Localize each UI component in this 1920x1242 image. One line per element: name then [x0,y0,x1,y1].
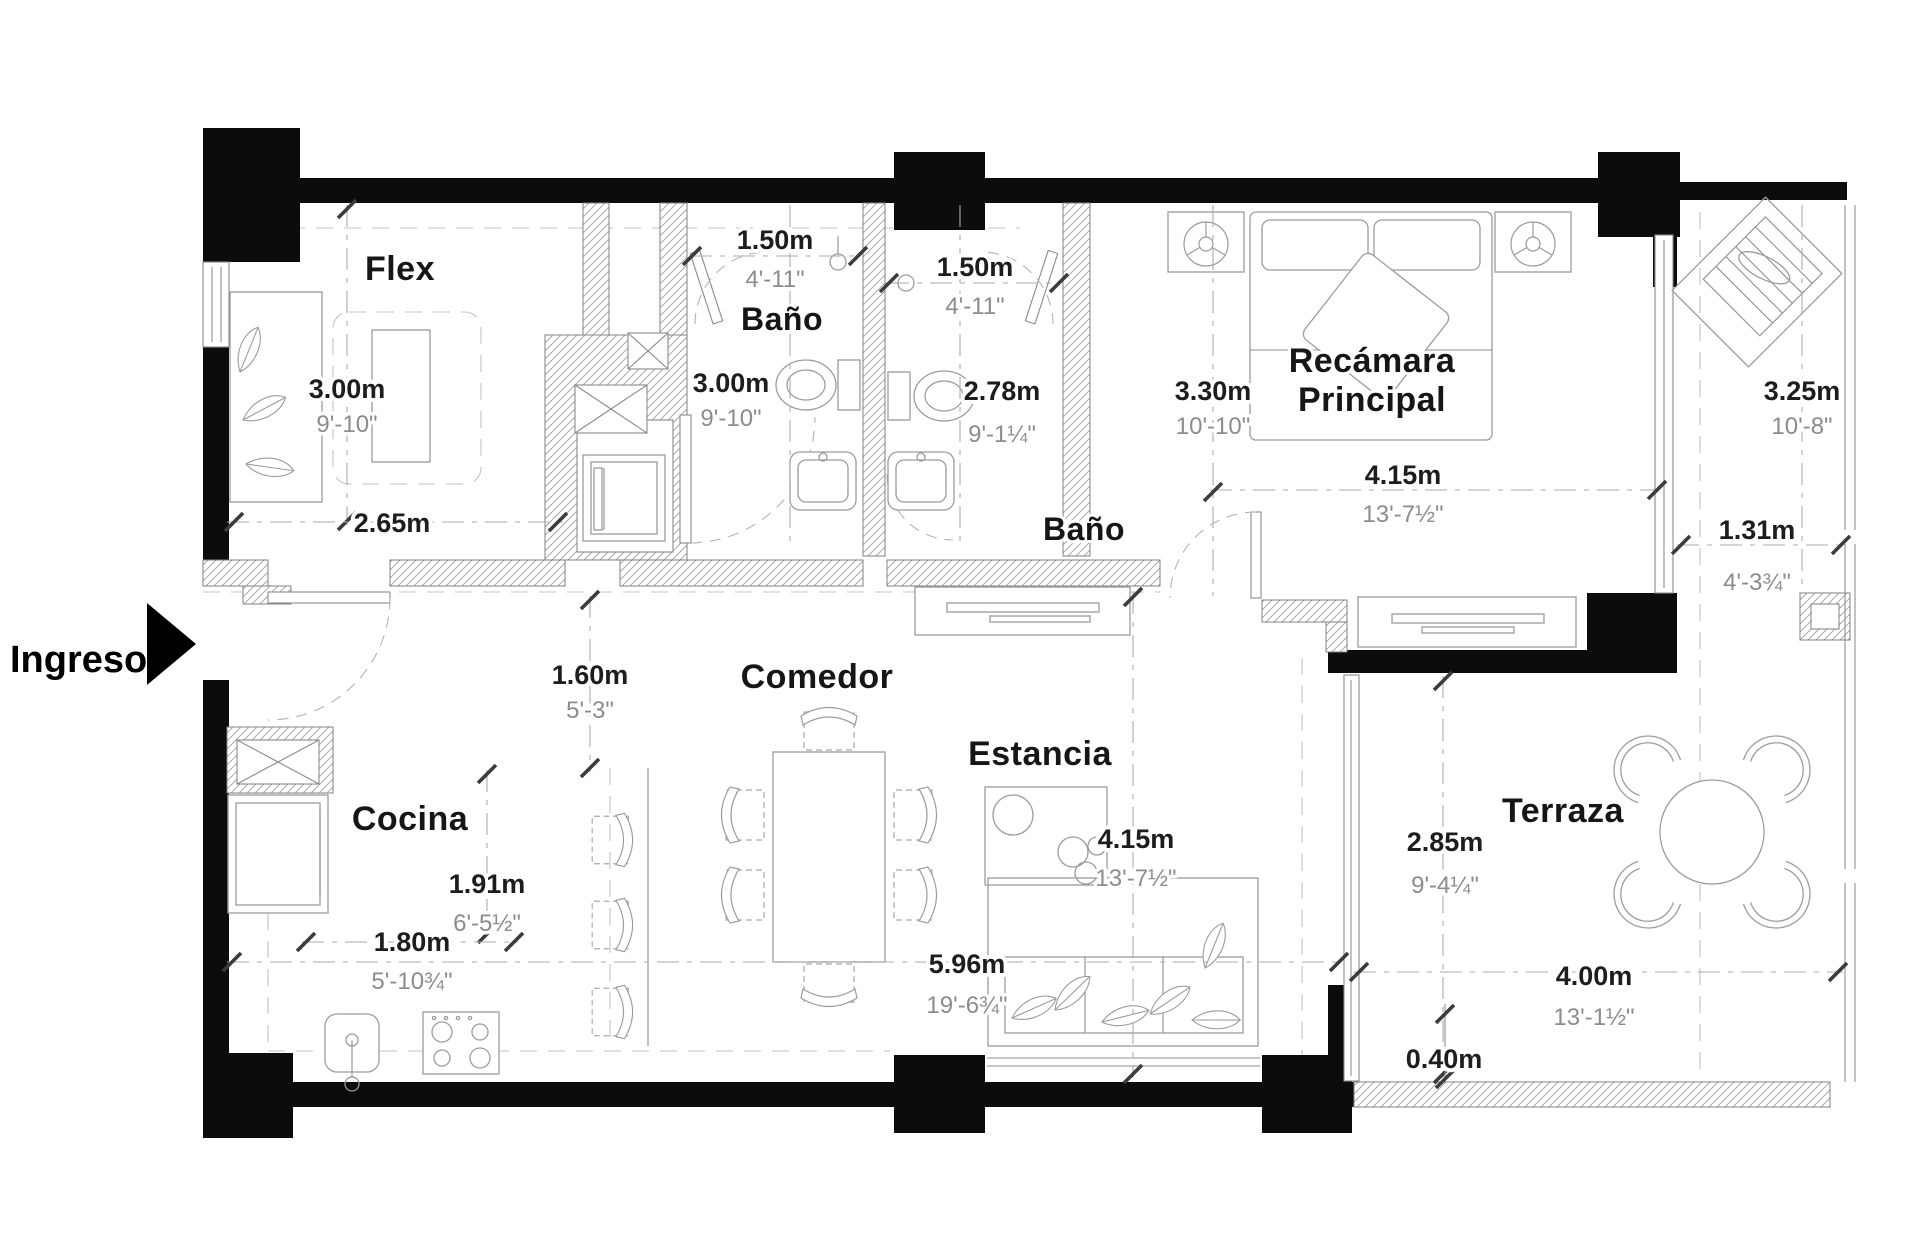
dim-estancia-width-m: 5.96m [929,949,1006,979]
dim-bano1-depth-m: 3.00m [693,368,770,398]
shaft-box-icon [575,385,647,433]
dim-terraza-width-m: 4.00m [1556,961,1633,991]
dim-flex-depth-ft: 9'-10" [316,411,377,438]
dim-bano2-depth-m: 2.78m [964,376,1041,406]
toilet-icon [888,371,974,421]
dim-terraza-depth-ft: 9'-4¼" [1411,872,1479,899]
bar-stools-icon [592,813,632,1038]
shaft-box-icon [237,740,319,784]
dim-estancia-width-ft: 19'-6¾" [926,992,1007,1019]
room-label-recamara: RecámaraPrincipal [1289,342,1456,419]
dresser-icon [1358,597,1576,647]
dim-balcony-width-m: 1.31m [1719,515,1796,545]
dim-balcony-depth-ft: 10'-8" [1771,413,1832,440]
dim-recamara-width-ft: 13'-7½" [1362,501,1443,528]
dim-flex-depth-m: 3.00m [309,374,386,404]
dim-terraza-depth-m: 2.85m [1407,827,1484,857]
dim-bano2-depth-ft: 9'-1¼" [968,421,1036,448]
washer-icon [583,455,665,541]
terrace-dining-icon [1600,722,1824,942]
room-label-cocina: Cocina [352,800,469,838]
lounge-chair-icon [1672,197,1842,367]
room-label-flex: Flex [365,250,435,288]
entrance-label: Ingreso [10,639,147,681]
dim-cocina-width-m: 1.80m [374,927,451,957]
dim-recamara-width-m: 4.15m [1365,460,1442,490]
room-label-recamara-line2: Principal [1298,381,1446,419]
dim-cocina-depth-ft: 6'-5½" [453,910,521,937]
sink-icon [888,452,954,510]
floor-plan: Ingreso Flex Baño Baño RecámaraPrincipal… [0,0,1920,1242]
stove-icon [423,1012,499,1074]
dim-terraza-edge-m: 0.40m [1406,1044,1483,1074]
entrance: Ingreso [10,603,196,685]
kitchen-sink-icon [325,1014,379,1091]
room-label-recamara-line1: Recámara [1289,342,1456,380]
door-leaf-bano1 [680,415,691,543]
dim-cocina-width-ft: 5'-10¾" [371,968,452,995]
door-leaf-foyer [268,592,390,603]
dim-bano1-width-ft: 4'-11" [745,266,804,293]
entrance-arrow-icon [147,603,196,685]
dim-hall-ft: 5'-3" [566,697,614,724]
fridge-icon [228,795,328,913]
tv-console-icon [915,587,1130,635]
shower-head-icon [830,236,846,270]
room-label-bano1: Baño [741,301,823,337]
door-leaf-bano1-top [690,250,722,323]
dim-estancia-depth-m: 4.15m [1098,824,1175,854]
sink-icon [790,452,856,510]
balcony-railing [1845,205,1855,1082]
room-label-comedor: Comedor [741,658,894,696]
dim-recamara-depth-ft: 10'-10" [1176,413,1250,440]
dim-bano1-width-m: 1.50m [737,225,814,255]
window-flex [203,262,229,347]
dim-balcony-width-ft: 4'-3¾" [1723,569,1791,596]
floor-plan-svg: Ingreso Flex Baño Baño RecámaraPrincipal… [0,0,1920,1242]
room-label-terraza: Terraza [1502,792,1625,830]
dim-hall-m: 1.60m [552,660,629,690]
shaft-box-icon [628,333,668,369]
dim-estancia-depth-ft: 13'-7½" [1095,865,1176,892]
coffee-table-icon [985,787,1107,885]
nightstand-icon [1495,212,1571,272]
dim-balcony-depth-m: 3.25m [1764,376,1841,406]
dim-bano2-width-m: 1.50m [937,252,1014,282]
door-leaf-recamara [1251,512,1261,598]
dim-bano1-depth-ft: 9'-10" [700,405,761,432]
room-label-estancia: Estancia [968,735,1112,773]
dim-flex-width-m: 2.65m [354,508,431,538]
dim-bano2-width-ft: 4'-11" [945,293,1004,320]
dim-cocina-depth-m: 1.91m [449,869,526,899]
room-label-bano2: Baño [1043,511,1125,547]
toilet-icon [776,360,860,410]
nightstand-icon [1168,212,1244,272]
dim-terraza-width-ft: 13'-1½" [1553,1004,1634,1031]
dim-recamara-depth-m: 3.30m [1175,376,1252,406]
